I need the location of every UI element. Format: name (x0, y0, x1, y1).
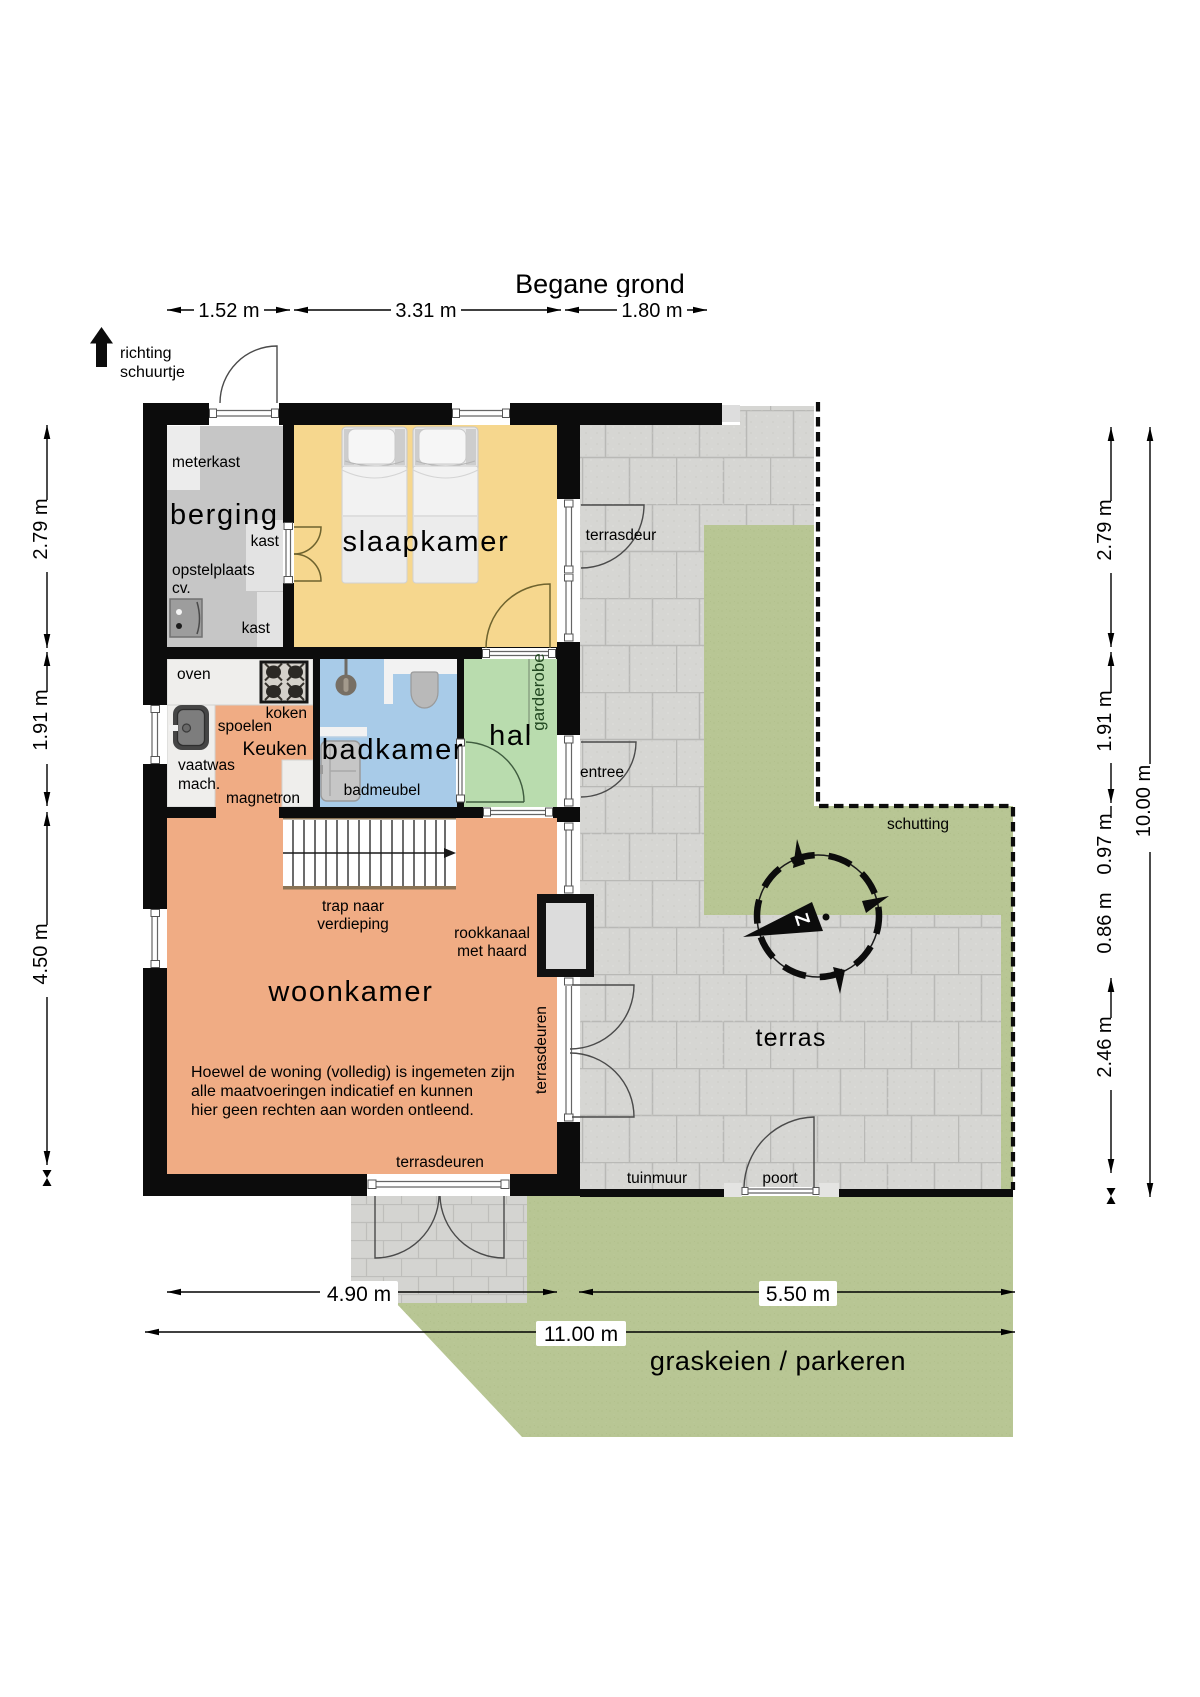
svg-text:10.00 m: 10.00 m (1133, 765, 1155, 837)
svg-text:terrasdeuren: terrasdeuren (533, 1006, 550, 1094)
svg-text:4.50 m: 4.50 m (30, 923, 52, 984)
svg-text:badmeubel: badmeubel (344, 782, 421, 799)
svg-text:mach.: mach. (178, 776, 220, 793)
svg-text:verdieping: verdieping (317, 916, 389, 933)
svg-text:richting: richting (120, 345, 172, 362)
svg-text:garderobe: garderobe (529, 653, 548, 731)
svg-text:terrasdeur: terrasdeur (586, 527, 657, 544)
svg-text:cv.: cv. (172, 580, 191, 597)
svg-text:3.31 m: 3.31 m (395, 300, 456, 322)
svg-text:0.97 m: 0.97 m (1094, 813, 1116, 874)
svg-text:schuurtje: schuurtje (120, 364, 185, 381)
svg-text:meterkast: meterkast (172, 454, 241, 471)
svg-text:kast: kast (242, 620, 271, 637)
svg-text:hal: hal (489, 720, 533, 752)
svg-text:rookkanaal: rookkanaal (454, 925, 530, 942)
svg-text:5.50 m: 5.50 m (766, 1283, 830, 1306)
svg-text:opstelplaats: opstelplaats (172, 562, 255, 579)
svg-text:trap naar: trap naar (322, 898, 384, 915)
svg-text:oven: oven (177, 666, 211, 683)
svg-text:spoelen: spoelen (218, 718, 272, 735)
svg-text:1.91 m: 1.91 m (1094, 690, 1116, 751)
svg-text:kast: kast (251, 533, 280, 550)
svg-text:magnetron: magnetron (226, 790, 300, 807)
svg-text:entree: entree (580, 764, 624, 781)
svg-text:terrasdeuren: terrasdeuren (396, 1154, 484, 1171)
svg-text:2.79 m: 2.79 m (1094, 499, 1116, 560)
svg-text:1.52 m: 1.52 m (198, 300, 259, 322)
svg-text:tuinmuur: tuinmuur (627, 1170, 687, 1187)
svg-text:terras: terras (755, 1024, 826, 1052)
svg-text:slaapkamer: slaapkamer (343, 526, 510, 558)
svg-text:11.00 m: 11.00 m (544, 1323, 618, 1346)
svg-text:poort: poort (762, 1170, 798, 1187)
svg-text:graskeien / parkeren: graskeien / parkeren (650, 1346, 906, 1376)
svg-text:hier geen rechten aan worden o: hier geen rechten aan worden ontleend. (191, 1102, 474, 1119)
svg-text:2.79 m: 2.79 m (30, 498, 52, 559)
svg-text:vaatwas: vaatwas (178, 757, 235, 774)
svg-text:1.91 m: 1.91 m (30, 689, 52, 750)
svg-text:badkamer: badkamer (322, 734, 465, 766)
svg-text:1.80 m: 1.80 m (621, 300, 682, 322)
svg-text:0.86 m: 0.86 m (1094, 892, 1116, 953)
svg-text:Hoewel de woning (volledig) is: Hoewel de woning (volledig) is ingemeten… (191, 1064, 515, 1081)
svg-text:Begane grond: Begane grond (515, 269, 685, 299)
svg-text:schutting: schutting (887, 816, 949, 833)
svg-text:met haard: met haard (457, 943, 527, 960)
svg-text:berging: berging (170, 499, 279, 531)
svg-text:alle maatvoeringen indicatief: alle maatvoeringen indicatief en kunnen (191, 1083, 473, 1100)
svg-text:2.46 m: 2.46 m (1094, 1016, 1116, 1077)
svg-text:woonkamer: woonkamer (267, 976, 433, 1008)
svg-text:Keuken: Keuken (243, 739, 307, 760)
svg-text:4.90 m: 4.90 m (327, 1283, 391, 1306)
